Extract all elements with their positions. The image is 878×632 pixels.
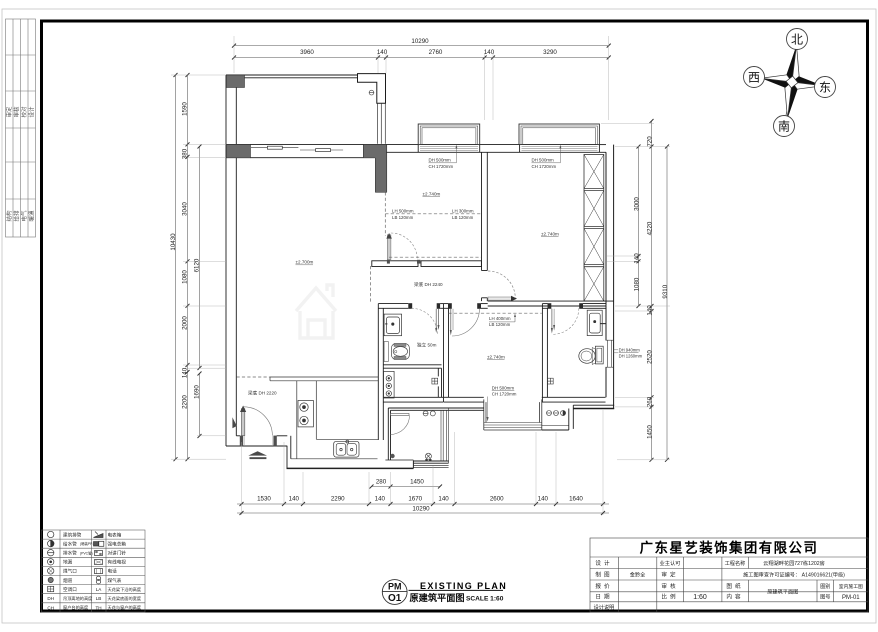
svg-text:建筑排管: 建筑排管 xyxy=(63,531,82,538)
svg-text:地漏: 地漏 xyxy=(63,559,73,566)
svg-text:DH 1260mm: DH 1260mm xyxy=(619,354,643,359)
svg-text:内容: 内容 xyxy=(726,593,743,601)
svg-text:图别: 图别 xyxy=(820,582,830,590)
svg-text:(PVC管): (PVC管) xyxy=(80,550,93,555)
svg-text:煤气口: 煤气口 xyxy=(63,568,77,575)
svg-text:2520: 2520 xyxy=(647,350,654,364)
svg-text:140: 140 xyxy=(438,496,449,503)
svg-text:图号: 图号 xyxy=(820,594,830,601)
svg-text:日期: 日期 xyxy=(595,594,612,601)
svg-text:梁底 DH 2220: 梁底 DH 2220 xyxy=(248,389,277,396)
svg-text:天花与窗户的高度: 天花与窗户的高度 xyxy=(108,604,142,611)
svg-text:给水管: 给水管 xyxy=(63,540,77,547)
svg-text:720: 720 xyxy=(647,136,654,147)
svg-text:金黔全: 金黔全 xyxy=(630,570,646,578)
svg-text:3000: 3000 xyxy=(634,197,641,211)
svg-text:260: 260 xyxy=(647,396,654,407)
svg-text:6120: 6120 xyxy=(193,258,200,272)
svg-text:PM: PM xyxy=(388,582,402,592)
svg-text:±2.740m: ±2.740m xyxy=(541,231,559,236)
svg-text:对讲门铃: 对讲门铃 xyxy=(108,550,127,557)
svg-text:3290: 3290 xyxy=(543,49,557,56)
svg-text:1530: 1530 xyxy=(257,496,271,503)
svg-text:±2.700m: ±2.700m xyxy=(296,260,314,265)
svg-text:2600: 2600 xyxy=(490,496,504,503)
svg-text:O1: O1 xyxy=(388,593,402,604)
svg-text:给排: 给排 xyxy=(13,210,21,222)
svg-text:审核: 审核 xyxy=(13,106,21,118)
svg-text:报价: 报价 xyxy=(595,582,612,590)
svg-text:天花梁下沿的高度: 天花梁下沿的高度 xyxy=(108,586,142,593)
svg-text:审定: 审定 xyxy=(661,570,678,578)
svg-text:LB 120mm: LB 120mm xyxy=(392,215,414,220)
svg-text:2290: 2290 xyxy=(331,496,345,503)
svg-text:DH 500mm: DH 500mm xyxy=(492,385,515,390)
svg-text:1450: 1450 xyxy=(647,425,654,439)
svg-text:设计: 设计 xyxy=(28,106,36,118)
svg-text:有线电视: 有线电视 xyxy=(108,559,127,566)
svg-text:140: 140 xyxy=(634,253,641,264)
svg-text:电气: 电气 xyxy=(20,210,28,222)
svg-text:280: 280 xyxy=(376,479,387,486)
svg-text:2200: 2200 xyxy=(181,395,188,409)
svg-text:380: 380 xyxy=(181,148,188,159)
svg-text:审核: 审核 xyxy=(661,582,678,590)
svg-text:1590: 1590 xyxy=(181,102,188,116)
svg-text:10290: 10290 xyxy=(411,38,429,45)
svg-text:CH 1720mm: CH 1720mm xyxy=(492,392,517,397)
svg-text:原建筑平面图: 原建筑平面图 xyxy=(767,588,798,596)
svg-text:1:60: 1:60 xyxy=(693,594,707,601)
svg-text:1080: 1080 xyxy=(634,277,641,291)
svg-text:SCALE 1:60: SCALE 1:60 xyxy=(466,596,504,603)
svg-text:广东星艺装饰集团有限公司: 广东星艺装饰集团有限公司 xyxy=(640,540,819,556)
svg-text:窗户台的高度: 窗户台的高度 xyxy=(63,604,89,611)
svg-text:电表箱: 电表箱 xyxy=(108,531,122,538)
svg-text:140: 140 xyxy=(484,49,495,56)
svg-text:LB: LB xyxy=(96,596,102,601)
svg-text:煤气表: 煤气表 xyxy=(108,577,122,584)
svg-text:9310: 9310 xyxy=(662,284,669,298)
svg-text:施工图审查许可证编号： A149016621(甲级): 施工图审查许可证编号： A149016621(甲级) xyxy=(743,570,845,578)
svg-text:140: 140 xyxy=(647,305,654,316)
svg-text:LB 120mm: LB 120mm xyxy=(489,322,511,327)
svg-text:4220: 4220 xyxy=(647,221,654,235)
svg-text:审定: 审定 xyxy=(5,106,13,118)
svg-text:南: 南 xyxy=(778,119,790,134)
svg-text:LH 300mm: LH 300mm xyxy=(452,209,474,214)
svg-text:LH 400mm: LH 400mm xyxy=(489,316,511,321)
svg-text:3960: 3960 xyxy=(300,49,314,56)
svg-text:设计: 设计 xyxy=(595,559,612,567)
svg-text:东: 东 xyxy=(819,81,831,95)
svg-text:梁底 DH 2240: 梁底 DH 2240 xyxy=(414,281,443,288)
svg-text:140: 140 xyxy=(181,367,188,378)
svg-text:±2.740m: ±2.740m xyxy=(487,354,505,359)
svg-text:校对: 校对 xyxy=(20,106,28,118)
svg-text:1690: 1690 xyxy=(193,385,200,399)
svg-text:DH: DH xyxy=(47,596,54,601)
svg-text:2000: 2000 xyxy=(181,316,188,330)
svg-text:LB 120mm: LB 120mm xyxy=(452,215,474,220)
svg-text:1450: 1450 xyxy=(410,479,424,486)
svg-text:比例: 比例 xyxy=(661,593,678,601)
svg-text:强电总箱: 强电总箱 xyxy=(108,540,127,547)
svg-text:LA: LA xyxy=(96,587,103,592)
svg-text:排水管: 排水管 xyxy=(63,550,77,557)
svg-text:天花梁底面的宽度: 天花梁底面的宽度 xyxy=(108,595,142,602)
svg-text:±2.740m: ±2.740m xyxy=(423,191,441,196)
svg-text:DH 500mm: DH 500mm xyxy=(532,158,555,163)
svg-text:140: 140 xyxy=(289,496,300,503)
svg-text:140: 140 xyxy=(375,496,386,503)
svg-text:工程名称: 工程名称 xyxy=(725,559,746,567)
svg-text:DH 500mm: DH 500mm xyxy=(429,158,452,163)
svg-text:暖通: 暖通 xyxy=(28,210,36,222)
svg-text:设计说明: 设计说明 xyxy=(594,603,615,611)
svg-text:图纸: 图纸 xyxy=(726,582,743,590)
svg-text:10290: 10290 xyxy=(412,506,430,513)
svg-text:室内施工图: 室内施工图 xyxy=(839,583,863,590)
svg-text:3040: 3040 xyxy=(181,202,188,216)
svg-text:140: 140 xyxy=(377,49,388,56)
svg-text:西: 西 xyxy=(748,71,760,85)
svg-text:北: 北 xyxy=(791,33,803,47)
svg-text:1670: 1670 xyxy=(408,496,422,503)
svg-text:10430: 10430 xyxy=(170,233,177,251)
svg-text:电话: 电话 xyxy=(108,568,118,575)
svg-text:CH 1720mm: CH 1720mm xyxy=(429,164,454,169)
svg-text:DH 940mm: DH 940mm xyxy=(619,347,641,352)
svg-text:TH: TH xyxy=(95,605,101,610)
svg-text:业主认可: 业主认可 xyxy=(660,559,681,567)
svg-text:PM-01: PM-01 xyxy=(842,595,860,601)
svg-text:CH: CH xyxy=(47,605,54,610)
svg-text:空调口: 空调口 xyxy=(63,586,77,593)
svg-text:140: 140 xyxy=(538,496,549,503)
svg-text:1080: 1080 xyxy=(181,270,188,284)
svg-text:LH 500mm: LH 500mm xyxy=(392,209,414,214)
svg-text:2760: 2760 xyxy=(429,49,443,56)
svg-text:1640: 1640 xyxy=(569,496,583,503)
svg-text:云翔湖畔花园727栋1202房: 云翔湖畔花园727栋1202房 xyxy=(763,559,825,567)
svg-text:吊顶离地的高度: 吊顶离地的高度 xyxy=(63,595,93,602)
svg-text:烟道: 烟道 xyxy=(63,577,73,584)
svg-text:原建筑平面图: 原建筑平面图 xyxy=(410,592,465,603)
svg-text:EXISTING PLAN: EXISTING PLAN xyxy=(420,581,507,591)
svg-text:制图: 制图 xyxy=(595,570,612,578)
svg-text:结构: 结构 xyxy=(5,210,13,222)
svg-text:CH 1720mm: CH 1720mm xyxy=(532,164,557,169)
svg-text:独立 50m: 独立 50m xyxy=(417,342,437,349)
